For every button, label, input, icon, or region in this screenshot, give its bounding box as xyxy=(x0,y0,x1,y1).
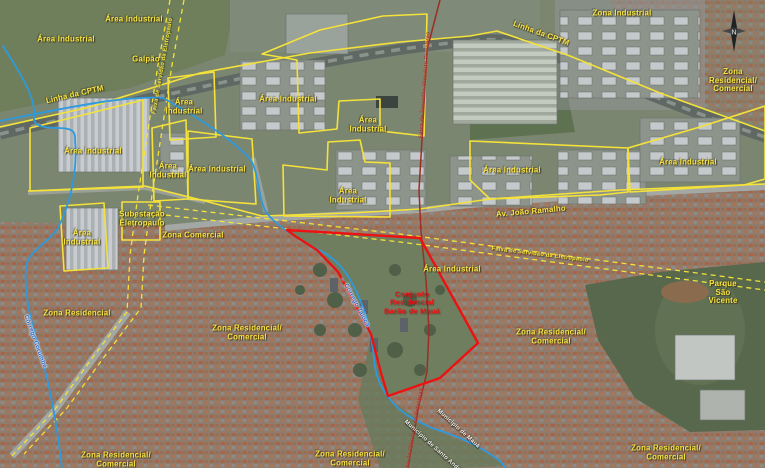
park-bare-soil xyxy=(661,281,709,303)
land-use-map-figure: N Área IndustrialÁrea IndustrialGalpãoLi… xyxy=(0,0,765,468)
satellite-map-canvas: N xyxy=(0,0,765,468)
svg-text:N: N xyxy=(731,28,736,37)
